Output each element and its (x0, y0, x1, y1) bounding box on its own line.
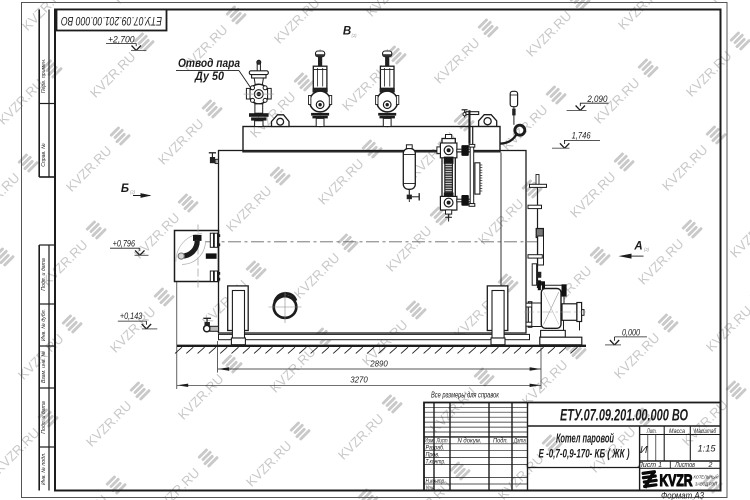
svg-text:(2): (2) (351, 33, 357, 38)
svg-text:Подп. и дата: Подп. и дата (41, 401, 47, 434)
svg-text:Т.контр.: Т.контр. (426, 458, 446, 465)
svg-text:ЗАВОД РЭП: ЗАВОД РЭП (695, 482, 717, 488)
svg-text:Подп.: Подп. (493, 437, 508, 445)
svg-text:ЕТУ.07.09.201.00.000 ВО: ЕТУ.07.09.201.00.000 ВО (61, 14, 162, 28)
svg-text:В: В (343, 26, 351, 38)
svg-text:Б: Б (121, 183, 129, 195)
svg-text:N докум.: N докум. (458, 437, 482, 445)
svg-text:Масса: Масса (669, 428, 685, 435)
svg-text:Справ. №: Справ. № (41, 143, 47, 167)
svg-text:Инв. № дубл.: Инв. № дубл. (41, 309, 47, 341)
svg-text:(2): (2) (130, 190, 136, 195)
svg-text:2890: 2890 (369, 358, 388, 368)
svg-text:Изм: Изм (424, 438, 434, 445)
svg-text:KVZR: KVZR (660, 472, 693, 490)
svg-text:Перв. примен.: Перв. примен. (41, 59, 47, 93)
svg-text:3270: 3270 (350, 374, 368, 384)
svg-text:ЕТУ.07.09.201.00.000 ВО: ЕТУ.07.09.201.00.000 ВО (560, 406, 688, 425)
svg-text:+0,143: +0,143 (120, 311, 143, 322)
svg-text:Лист: Лист (436, 438, 448, 445)
svg-text:Разраб.: Разраб. (426, 444, 445, 452)
svg-text:Инв. № подл.: Инв. № подл. (41, 453, 47, 485)
svg-text:(2): (2) (644, 247, 650, 252)
svg-text:А: А (633, 241, 642, 253)
svg-text:Утв.: Утв. (425, 485, 436, 492)
svg-text:Все размеры для справок: Все размеры для справок (431, 389, 500, 399)
svg-text:Лит.: Лит. (646, 428, 657, 435)
svg-text:И: И (640, 444, 648, 456)
svg-text:1:15: 1:15 (698, 443, 717, 454)
svg-text:Взам. инв. №: Взам. инв. № (41, 351, 47, 383)
svg-text:Котел паровой: Котел паровой (556, 432, 614, 446)
svg-text:Масштаб: Масштаб (694, 427, 716, 435)
svg-text:Формат А3: Формат А3 (661, 489, 705, 500)
svg-text:Е -0,7-0,9-170- КБ ( ЖК ): Е -0,7-0,9-170- КБ ( ЖК ) (539, 446, 630, 460)
svg-text:Подп. и дата: Подп. и дата (41, 258, 47, 291)
svg-text:1,746: 1,746 (572, 131, 592, 142)
svg-text:Отвод пара: Отвод пара (178, 56, 240, 70)
svg-text:Дата: Дата (513, 438, 526, 445)
